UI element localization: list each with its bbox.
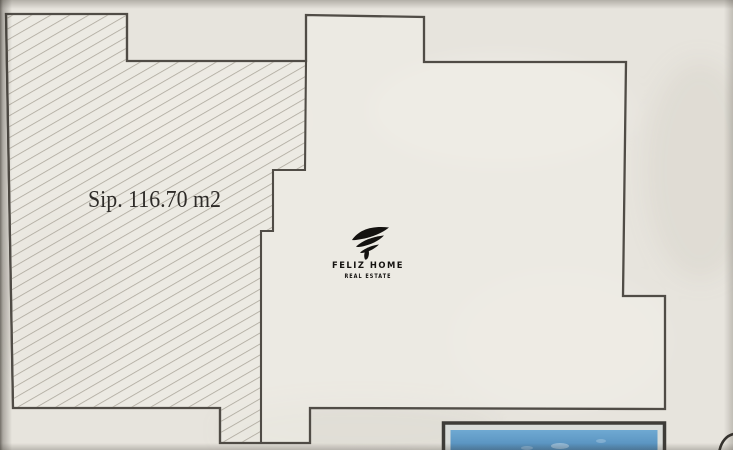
logo-title: FELIZ HOME	[332, 261, 404, 271]
hatched-area-sip	[6, 14, 306, 443]
floor-plan-canvas: Sip. 116.70 m2 FELIZ HOME REAL ESTATE	[0, 0, 733, 450]
logo-subtitle: REAL ESTATE	[345, 273, 392, 280]
scanned-floor-plan-photo: Sip. 116.70 m2 FELIZ HOME REAL ESTATE	[0, 0, 733, 450]
pool-image	[444, 423, 665, 450]
area-label: Sip. 116.70 m2	[88, 187, 221, 213]
